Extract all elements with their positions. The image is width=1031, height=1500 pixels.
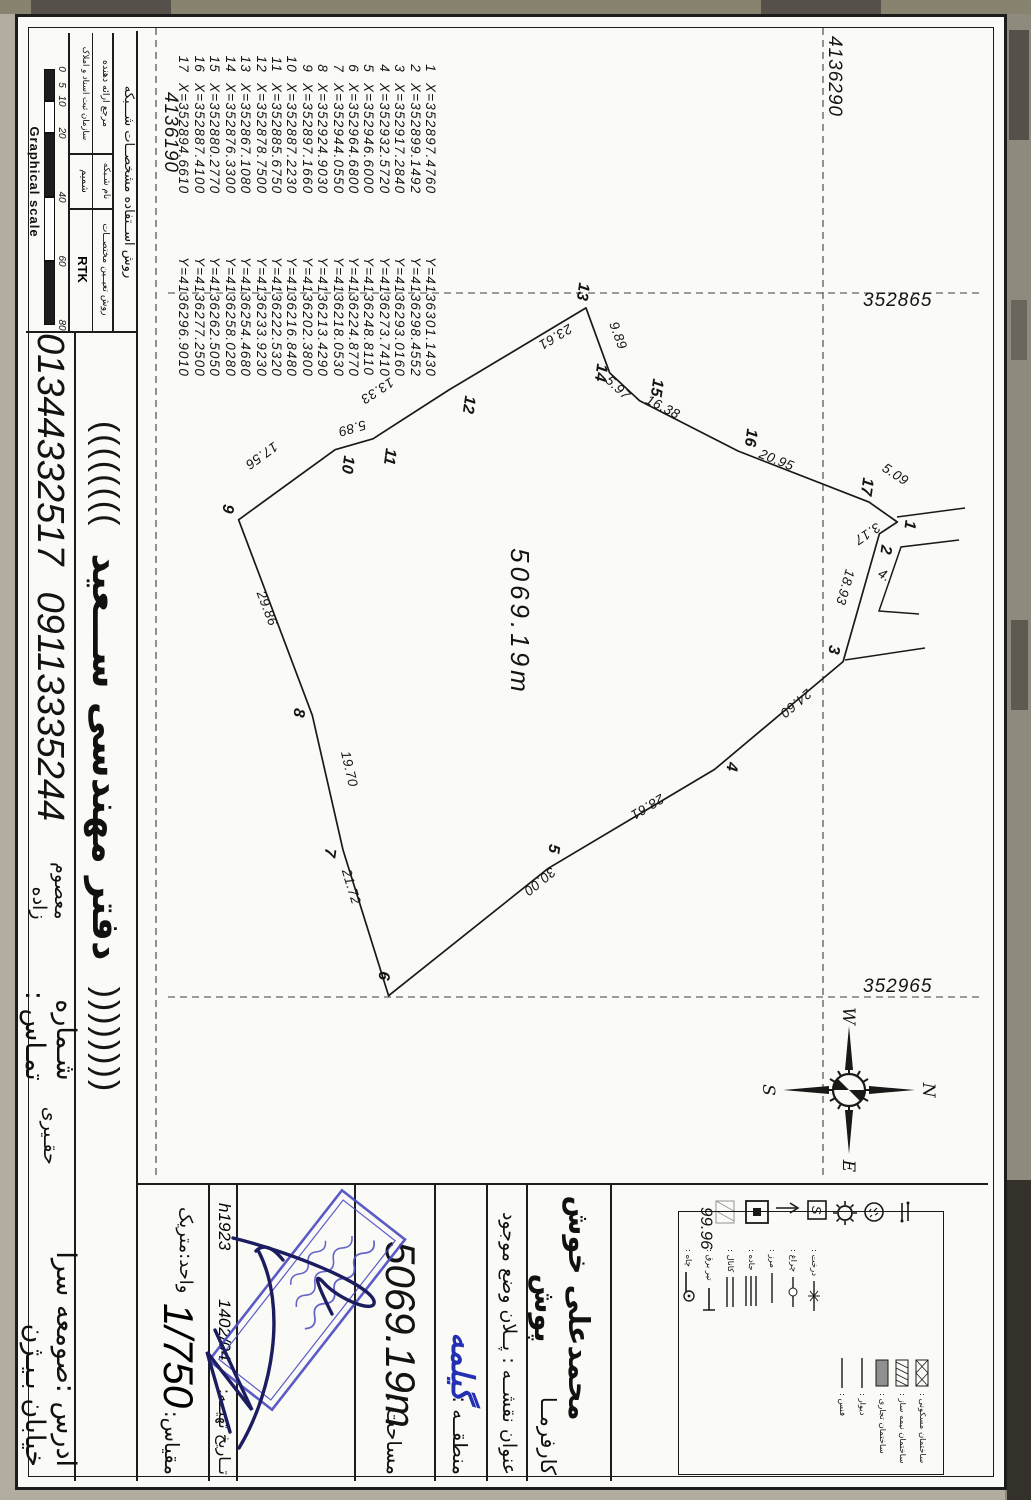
footer-office-row: (((((((( دفتر مهندسی ســـعید )))))))) [76,333,136,1481]
coordinate-row: 14X=352876.3300Y=4136258.0280 [222,51,237,377]
legend-item-label: درخت : [809,1249,819,1276]
legend-item: چراغ : [785,1249,801,1312]
circled-cross-icon [857,1199,886,1225]
legend-item: مرز : [764,1249,780,1308]
legend-symbol [681,1270,695,1304]
legend-symbol [765,1271,779,1305]
coordinate-list: 1X=352897.4760Y=4136301.14302X=352899.14… [176,51,438,377]
coordinate-row: 8X=352924.9030Y=4136213.4290 [315,51,330,377]
legend-item: ساختمان نیمه ساز : [894,1353,910,1463]
decorative-parens: (((((((( [87,421,126,528]
legend-item: جاده : [743,1249,759,1311]
coordinate-row: 5X=352946.6000Y=4136248.8110 [361,51,376,377]
legend-item-label: ساختمان تجاری : [877,1393,887,1454]
legend-symbol [702,1284,716,1318]
legend-symbol [875,1356,889,1390]
scan-edge [761,0,881,14]
legend-item-label: جاده : [746,1249,756,1271]
scale-bar [44,33,55,331]
scan-edge [1009,30,1029,140]
legend-symbol [915,1356,929,1390]
area-cell: مساحت : 5069.19m [356,1185,434,1481]
graphical-scale: 051020406080 Graphical scale [26,33,68,331]
phone-number: 09113335244 [29,591,72,821]
phone-label: شـماره تمـاس : [19,946,81,1081]
legend-item-label: ساختمان نیمه ساز : [897,1393,907,1463]
legend-item: فنس : [834,1353,850,1416]
scale-caption: Graphical scale [27,33,42,331]
scan-edge [1007,1180,1031,1500]
coordinate-row: 6X=352964.6800Y=4136224.8770 [346,51,361,377]
date-cell: تــاریخ تهیــه: 1402/04 h1923 [210,1185,236,1481]
legend-item: تیر برق : [701,1249,717,1321]
phone-number: 01344332517 [29,333,72,565]
legend-item-label: دیوار : [857,1393,867,1416]
scale-bar-segment [44,133,55,197]
coordinate-row: 13X=352867.1080Y=4136254.4680 [238,51,253,377]
region-label: منطقــه : [448,1396,472,1475]
legend-symbol [855,1356,869,1390]
client-label: کارفرمــا [536,1397,560,1475]
date-value: 1402/04 [214,1299,234,1360]
scan-edge [31,0,171,14]
surname-small: حقـیری [39,1107,61,1165]
legend-item-label: چاه : [683,1249,693,1267]
coordinate-row: 12X=352878.7500Y=4136233.9230 [253,51,268,377]
scale-bar-segment [44,69,55,101]
scale-bar-segment [44,101,55,133]
scan-edge [1011,300,1027,360]
footer-contact-row: ادرس :صومعه سرا خیابان بـیـژن حقـیری شـم… [26,333,74,1481]
svg-text:S: S [809,1206,824,1215]
legend-item: دیوار : [854,1353,870,1416]
scale-value: 1/750 [154,1303,202,1408]
scale-tick-label: 80 [56,319,67,330]
scale-bar-segment [44,197,55,261]
region-cell: منطقــه : گیلمه [436,1185,486,1481]
unit-label: واحد:متریک [175,1207,196,1293]
coordinate-row: 4X=352932.5720Y=4136273.7410 [376,51,391,377]
scale-tick-label: 60 [56,255,67,266]
coordinate-row: 15X=352880.2770Y=4136262.5050 [207,51,222,377]
legend-item-label: ساختمان مسکونی : [917,1393,927,1463]
client-cell: محمدعلی خوش پوش کارفرمــا [528,1185,610,1481]
scale-tick-label: 5 [56,82,67,88]
legend-item: کانال : [722,1249,738,1312]
coordinate-row: 1X=352897.4760Y=4136301.1430 [423,51,438,377]
survey-sheet-rotated: روش اســتفاده مشخصــات شـــبکه روش تعیــ… [0,0,1031,1500]
region-value-handwritten: گیلمه [444,1332,480,1401]
scale-label: مقیاس: [160,1411,184,1475]
scale-tick-label: 20 [56,127,67,138]
coordinate-row: 10X=352887.2230Y=4136216.8480 [284,51,299,377]
map-title-cell: عنوان نقشــه : پــلان وضع موجود [498,1185,520,1479]
hatch-swatch-icon [709,1199,736,1225]
surveyor-name-small: معصوم زاده [28,847,72,919]
coordinate-row: 7X=352944.0550Y=4136218.0530 [330,51,345,377]
legend-symbol [835,1356,849,1390]
area-value: 5069.19m [376,1241,424,1428]
coordinate-row: 17X=352894.6610Y=4136296.9010 [176,51,191,377]
double-line-icon [889,1199,914,1225]
cell-divider [610,1183,612,1481]
legend-item: چاه : [680,1249,696,1307]
net-col-value: سازمان ثبت اسناد و املاک [80,35,90,152]
date-label: تــاریخ تهیــه: [215,1389,234,1475]
legend-item: درخت : [806,1249,822,1316]
legend-item-label: کانال : [725,1249,735,1272]
s-box-icon: S [801,1199,828,1221]
coordinate-row: 16X=352887.4100Y=4136277.2500 [192,51,207,377]
scan-edge [1011,620,1028,710]
scale-tick-label: 10 [56,95,67,106]
box-dot-icon [739,1199,770,1225]
coordinate-row: 2X=352899.1492Y=4136298.4552 [407,51,422,377]
scale-cell: مقیاس: 1/750 واحد:متریک [138,1185,208,1481]
address-text: ادرس :صومعه سرا خیابان بـیـژن [19,1191,81,1467]
scale-bar-segment [44,261,55,325]
legend-item-label: مرز : [767,1249,777,1268]
coordinate-row: 9X=352897.1660Y=4136202.3800 [299,51,314,377]
legend-item: ساختمان تجاری : [874,1353,890,1454]
cell-divider [486,1183,488,1481]
coordinate-row: 11X=352885.6750Y=4136222.5320 [269,51,284,377]
sun-icon [827,1199,858,1227]
cell-divider [236,1183,238,1481]
scale-tick-label: 40 [56,191,67,202]
net-col-label: مرجع ارائه دهنده [100,35,111,152]
coordinate-row: 3X=352917.2840Y=4136293.0160 [392,51,407,377]
legend-symbol [744,1274,758,1308]
legend-item-label: تیر برق : [704,1249,714,1281]
office-name: دفتر مهندسی ســـعید [84,553,128,960]
legend-symbol [723,1275,737,1309]
decorative-parens: )))))))) [87,987,126,1094]
legend-item-label: فنس : [837,1393,847,1416]
legend-item-label: چراغ : [788,1249,798,1272]
arrow-up-icon [769,1199,800,1217]
legend-item: ساختمان مسکونی : [914,1353,930,1463]
sheet-code: h1923 [214,1203,234,1250]
scale-tick-label: 0 [56,66,67,72]
legend-symbol [895,1356,909,1390]
legend-symbol [807,1279,821,1313]
client-name: محمدعلی خوش پوش [528,1193,596,1423]
legend-symbol [786,1275,800,1309]
paper-sheet: روش اســتفاده مشخصــات شـــبکه روش تعیــ… [15,14,1007,1490]
